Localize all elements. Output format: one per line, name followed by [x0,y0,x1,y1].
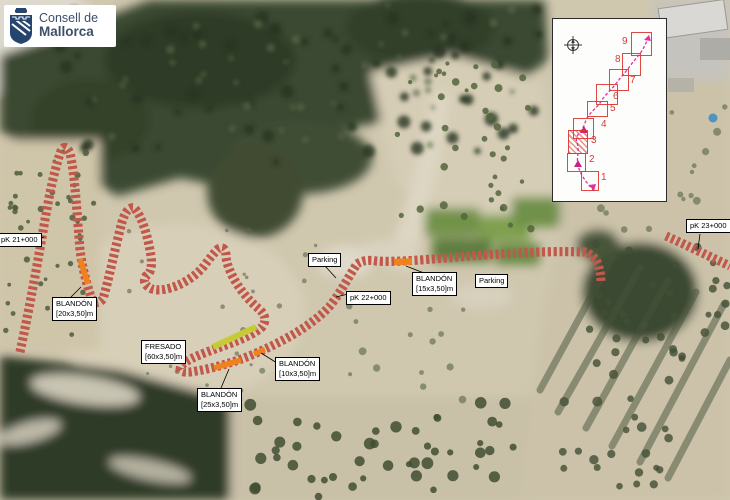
label-pk22: pK 22+000 [346,291,391,305]
pool [709,114,718,123]
consell-de-mallorca-logo: Consell de Mallorca [4,5,116,47]
sheet-number-5: 5 [610,103,616,114]
sheet-box-9 [631,32,652,56]
blandon-20-title: BLANDÓN [56,299,93,309]
label-blandon-10: BLANDÓN [10x3,50]m [275,357,320,381]
label-blandon-15: BLANDÓN [15x3,50]m [412,272,457,296]
sheet-index-inset-map: 1 2 3 4 5 6 7 8 9 [552,18,667,202]
sheet-number-1: 1 [601,172,607,183]
sheet-number-2: 2 [589,154,595,165]
pk22-text: pK 22+000 [350,293,387,303]
label-blandon-25: BLANDÓN [25x3,50]m [197,388,242,412]
blandon-segment-15m [394,262,412,263]
sheet-box-1 [581,171,599,191]
label-fresado-60: FRESADO [60x3,50]m [141,340,186,364]
sheet-number-6: 6 [613,91,619,102]
sheet-box-8 [622,53,641,76]
parking-2-text: Parking [479,276,504,286]
plan-sheet: pK 21+000 BLANDÓN [20x3,50]m FRESADO [60… [0,0,730,500]
fresado-60-dims: [60x3,50]m [145,352,182,362]
sheet-number-4: 4 [601,119,607,130]
blandon-10-title: BLANDÓN [279,359,316,369]
sheet-number-7: 7 [630,75,636,86]
blandon-10-dims: [10x3,50]m [279,369,316,379]
label-parking-1: Parking [308,253,341,267]
sheet-box-2 [567,153,586,172]
sheet-number-3: 3 [591,135,597,146]
coat-of-arms-icon [8,8,34,44]
pk23-text: pK 23+000 [690,221,727,231]
sheet-number-8: 8 [615,54,621,65]
logo-line-2: Mallorca [39,25,98,39]
label-pk23: pK 23+000 [686,219,730,233]
label-blandon-20: BLANDÓN [20x3,50]m [52,297,97,321]
label-pk21: pK 21+000 [0,233,42,247]
pk21-text: pK 21+000 [1,235,38,245]
blandon-15-title: BLANDÓN [416,274,453,284]
north-compass-icon [564,36,582,54]
fresado-60-title: FRESADO [145,342,182,352]
sheet-number-9: 9 [622,36,628,47]
label-parking-2: Parking [475,274,508,288]
blandon-20-dims: [20x3,50]m [56,309,93,319]
parking-1-text: Parking [312,255,337,265]
blandon-25-dims: [25x3,50]m [201,400,238,410]
blandon-15-dims: [15x3,50]m [416,284,453,294]
blandon-25-title: BLANDÓN [201,390,238,400]
